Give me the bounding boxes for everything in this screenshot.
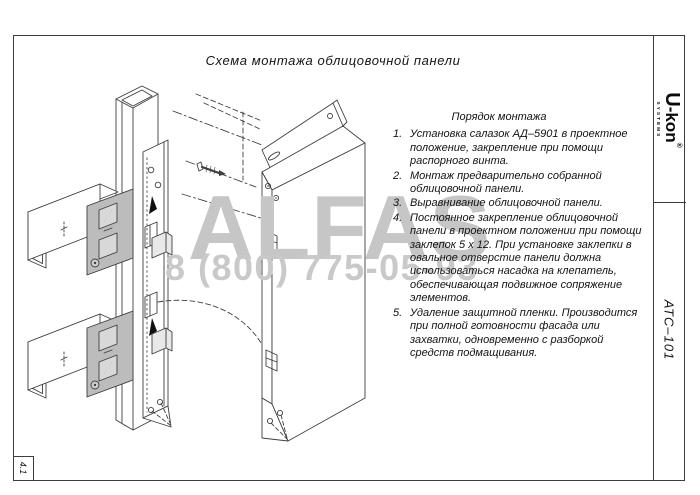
item-text: Выравнивание облицовочной панели. xyxy=(410,197,645,210)
logo-text: -kon xyxy=(662,107,681,143)
title-column-cell-divider xyxy=(653,202,686,203)
instruction-item: 2. Монтаж предварительно собранной облиц… xyxy=(393,170,645,197)
instruction-item: 3. Выравнивание облицовочной панели. xyxy=(393,197,645,210)
instruction-item: 5. Удаление защитной пленки. Производитс… xyxy=(393,307,645,361)
item-number: 1. xyxy=(393,128,410,168)
title-column-divider xyxy=(653,35,654,481)
page-title: Схема монтажа облицовочной панели xyxy=(13,53,653,68)
logo-subtext: SYSTEMS xyxy=(656,92,661,148)
logo-u-glyph: U xyxy=(661,92,683,106)
item-number: 4. xyxy=(393,212,410,306)
sheet-code: АТС–101 xyxy=(662,300,677,361)
installation-instructions: Порядок монтажа 1. Установка салазок АД–… xyxy=(393,111,645,361)
item-number: 3. xyxy=(393,197,410,210)
instructions-heading: Порядок монтажа xyxy=(393,111,645,124)
instruction-item: 1. Установка салазок АД–5901 в проектное… xyxy=(393,128,645,168)
item-text: Установка салазок АД–5901 в проектное по… xyxy=(410,128,645,168)
sheet-number-box-line-v xyxy=(33,456,34,481)
ukon-logo: U-kon® SYSTEMS xyxy=(656,92,682,148)
item-text: Монтаж предварительно собранной облицово… xyxy=(410,170,645,197)
sheet-number-box-line-h xyxy=(13,456,34,457)
item-text: Постоянное закрепление облицовочной пане… xyxy=(410,212,645,306)
logo-registered-mark: ® xyxy=(675,143,682,148)
instruction-item: 4. Постоянное закрепление облицовочной п… xyxy=(393,212,645,306)
item-text: Удаление защитной пленки. Производится п… xyxy=(410,307,645,361)
item-number: 2. xyxy=(393,170,410,197)
item-number: 5. xyxy=(393,307,410,361)
sheet-number: 4.1 xyxy=(18,462,28,475)
